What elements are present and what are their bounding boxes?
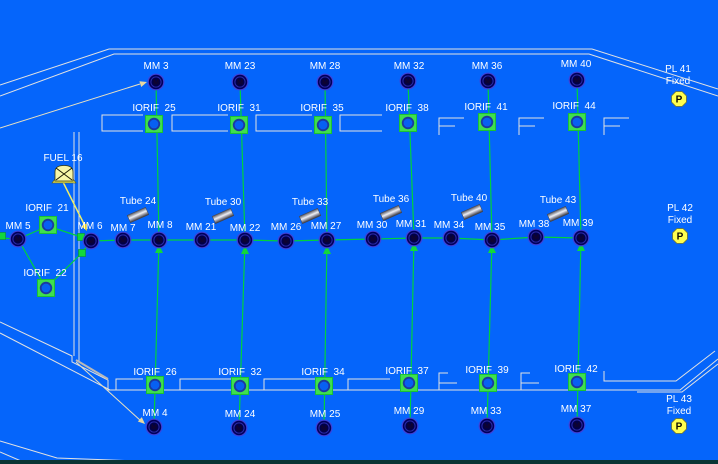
gauge-node-icon[interactable] bbox=[317, 74, 333, 90]
orifice-node-icon[interactable] bbox=[316, 378, 333, 395]
gauge-node-icon[interactable] bbox=[480, 73, 496, 89]
orifice-node-icon[interactable] bbox=[231, 117, 248, 134]
gauge-node-icon[interactable] bbox=[146, 419, 162, 435]
pressure-node-icon[interactable] bbox=[672, 419, 687, 434]
gauge-node-icon[interactable] bbox=[278, 233, 294, 249]
gauge-node-icon[interactable] bbox=[231, 420, 247, 436]
tube-icon[interactable] bbox=[380, 205, 402, 220]
pressure-node-icon[interactable] bbox=[672, 92, 687, 107]
gauge-node-icon[interactable] bbox=[402, 418, 418, 434]
orifice-node-icon[interactable] bbox=[569, 114, 586, 131]
gauge-node-icon[interactable] bbox=[573, 230, 589, 246]
gauge-node-icon[interactable] bbox=[319, 232, 335, 248]
orifice-node-icon[interactable] bbox=[147, 377, 164, 394]
tube-icon[interactable] bbox=[127, 207, 149, 222]
gauge-node-icon[interactable] bbox=[484, 232, 500, 248]
orifice-node-icon[interactable] bbox=[569, 374, 586, 391]
gauge-node-icon[interactable] bbox=[400, 73, 416, 89]
bottom-edge-bar bbox=[0, 460, 718, 464]
orifice-node-icon[interactable] bbox=[38, 280, 55, 297]
gauge-node-icon[interactable] bbox=[365, 231, 381, 247]
gauge-node-icon[interactable] bbox=[115, 232, 131, 248]
schematic-canvas: M P bbox=[0, 0, 718, 464]
gauge-node-icon[interactable] bbox=[569, 417, 585, 433]
orifice-node-icon[interactable] bbox=[40, 217, 57, 234]
fuel-tank-icon[interactable] bbox=[52, 166, 76, 184]
gauge-node-icon[interactable] bbox=[194, 232, 210, 248]
orifice-node-icon[interactable] bbox=[479, 114, 496, 131]
gauge-node-icon[interactable] bbox=[151, 232, 167, 248]
leader-arrow-to-mm4 bbox=[76, 362, 145, 424]
wing-structure-outline bbox=[0, 49, 718, 464]
orifice-node-icon[interactable] bbox=[315, 117, 332, 134]
gauge-node-icon[interactable] bbox=[10, 231, 26, 247]
tube-icon[interactable] bbox=[299, 208, 321, 223]
tube-icon[interactable] bbox=[461, 204, 483, 219]
gauge-node-icon[interactable] bbox=[479, 418, 495, 434]
gauge-node-icon[interactable] bbox=[148, 74, 164, 90]
gauge-node-icon[interactable] bbox=[406, 230, 422, 246]
gauge-node-icon[interactable] bbox=[443, 230, 459, 246]
gauge-node-icon[interactable] bbox=[316, 420, 332, 436]
gauge-node-icon[interactable] bbox=[83, 233, 99, 249]
orifice-node-icon[interactable] bbox=[480, 375, 497, 392]
gauge-node-icon[interactable] bbox=[528, 229, 544, 245]
fuel-connector-line[interactable] bbox=[63, 182, 87, 231]
gauge-node-icon[interactable] bbox=[232, 74, 248, 90]
orifice-node-icon[interactable] bbox=[146, 116, 163, 133]
orifice-node-icon[interactable] bbox=[232, 378, 249, 395]
pressure-node-icon[interactable] bbox=[673, 229, 688, 244]
junction-node-icon[interactable] bbox=[0, 233, 6, 240]
tube-icon[interactable] bbox=[212, 208, 234, 223]
orifice-node-icon[interactable] bbox=[400, 115, 417, 132]
tube-icon[interactable] bbox=[547, 206, 569, 221]
gauge-node-icon[interactable] bbox=[237, 232, 253, 248]
junction-node-icon[interactable] bbox=[79, 250, 86, 257]
gauge-node-icon[interactable] bbox=[569, 72, 585, 88]
orifice-node-icon[interactable] bbox=[401, 375, 418, 392]
